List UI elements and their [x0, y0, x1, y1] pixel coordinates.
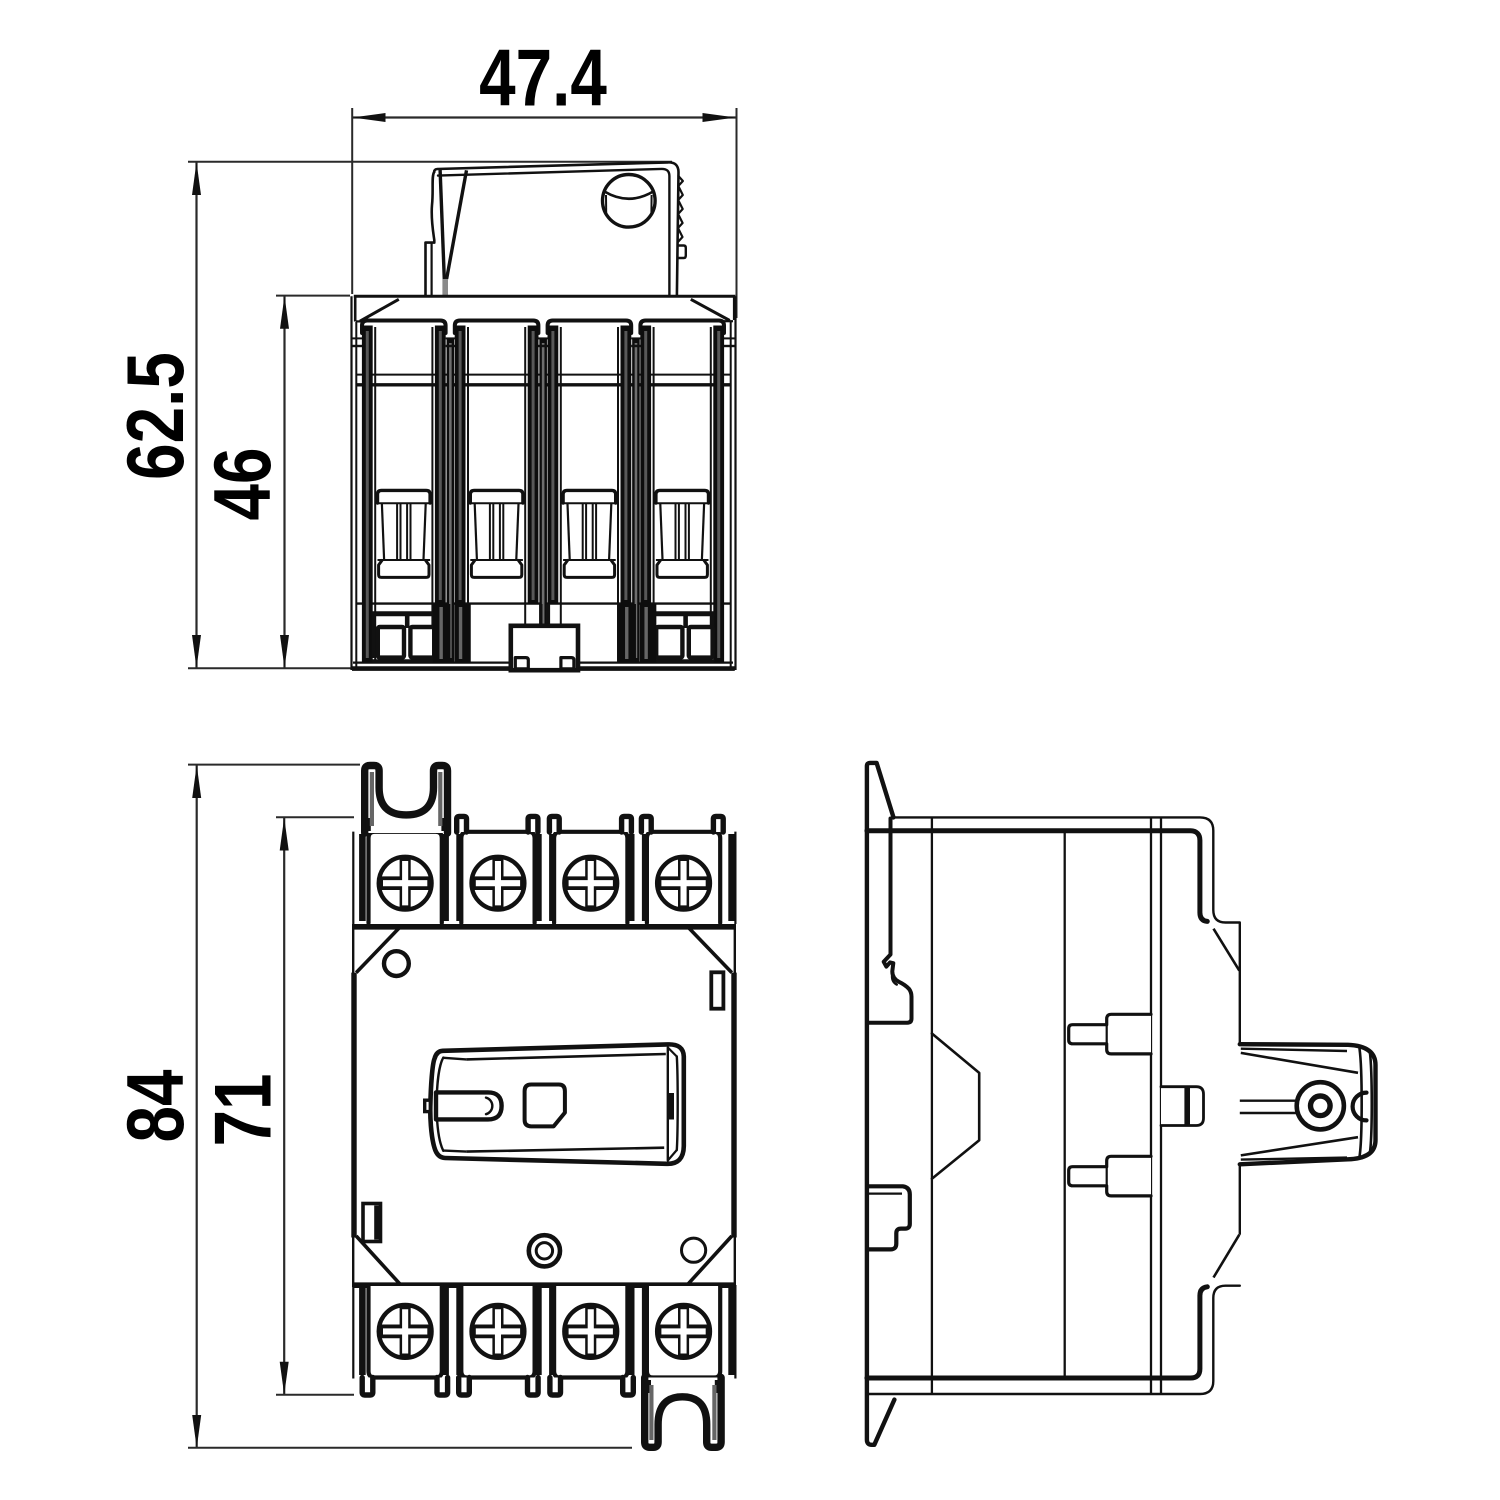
svg-text:84: 84: [109, 1070, 200, 1143]
svg-text:46: 46: [196, 448, 287, 521]
svg-text:71: 71: [197, 1074, 288, 1147]
svg-text:47.4: 47.4: [479, 32, 607, 123]
svg-text:62.5: 62.5: [109, 352, 200, 480]
